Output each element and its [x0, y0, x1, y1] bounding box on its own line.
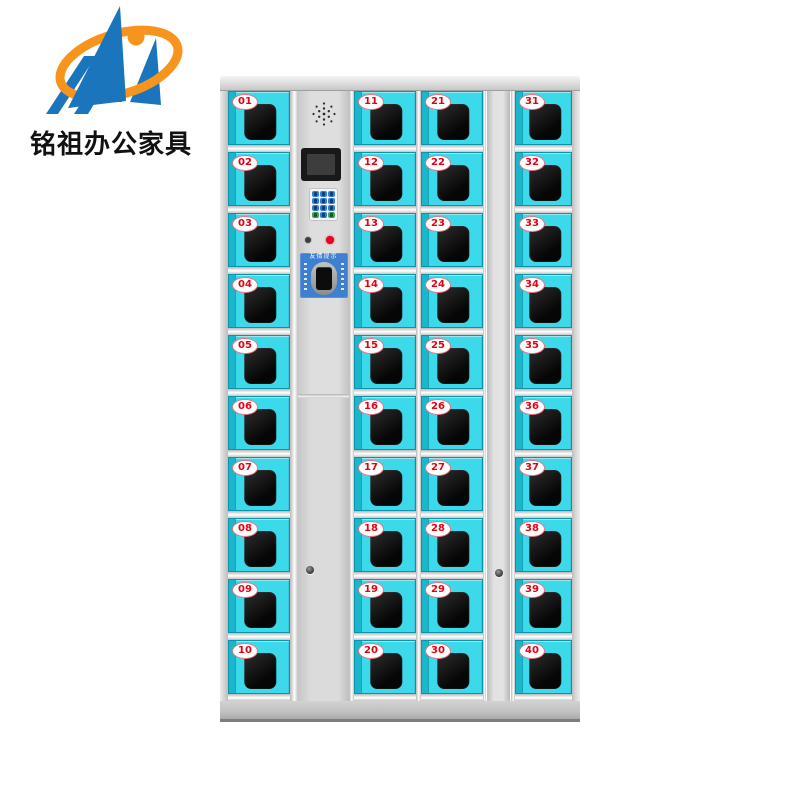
locker-number-badge: 37	[519, 460, 545, 476]
locker-column-2: 11 12 13 14	[354, 91, 416, 701]
locker-door-18: 18	[354, 518, 416, 572]
keypad-button	[320, 191, 327, 197]
locker-door-20: 20	[354, 640, 416, 694]
keypad-button	[312, 212, 319, 218]
shelf-rail	[421, 572, 483, 579]
locker-door-10: 10	[228, 640, 290, 694]
locker-slot: 36	[515, 396, 572, 457]
shelf-rail	[515, 694, 572, 701]
locker-door-27: 27	[421, 457, 483, 511]
locker-slot: 18	[354, 518, 416, 579]
locker-slot: 26	[421, 396, 483, 457]
shelf-rail	[228, 328, 290, 335]
cabinet-left-frame	[220, 91, 228, 701]
locker-number-badge: 31	[519, 94, 545, 110]
locker-door-31: 31	[515, 91, 572, 145]
keyhole-icon	[495, 569, 503, 577]
locker-slot: 39	[515, 579, 572, 640]
locker-door-25: 25	[421, 335, 483, 389]
locker-slot: 05	[228, 335, 290, 396]
shelf-rail	[354, 633, 416, 640]
locker-slot: 11	[354, 91, 416, 152]
locker-number-badge: 20	[358, 643, 384, 659]
locker-cabinet: 01 02 03 04	[220, 76, 580, 722]
reader-side-text	[304, 263, 307, 293]
keypad-button	[328, 205, 335, 211]
speaker-grille-icon	[309, 99, 339, 129]
locker-number-badge: 14	[358, 277, 384, 293]
shelf-rail	[354, 206, 416, 213]
shelf-rail	[421, 206, 483, 213]
locker-number-badge: 38	[519, 521, 545, 537]
reader-panel-title: 友情提示	[300, 253, 348, 261]
locker-door-07: 07	[228, 457, 290, 511]
locker-number-badge: 33	[519, 216, 545, 232]
shelf-rail	[228, 206, 290, 213]
locker-door-38: 38	[515, 518, 572, 572]
locker-number-badge: 13	[358, 216, 384, 232]
locker-door-22: 22	[421, 152, 483, 206]
shelf-rail	[421, 450, 483, 457]
locker-door-32: 32	[515, 152, 572, 206]
locker-door-29: 29	[421, 579, 483, 633]
shelf-rail	[515, 206, 572, 213]
locker-number-badge: 26	[425, 399, 451, 415]
locker-number-badge: 34	[519, 277, 545, 293]
locker-number-badge: 05	[232, 338, 258, 354]
locker-door-26: 26	[421, 396, 483, 450]
shelf-rail	[421, 694, 483, 701]
locker-slot: 34	[515, 274, 572, 335]
locker-number-badge: 02	[232, 155, 258, 171]
cabinet-base	[220, 701, 580, 722]
locker-slot: 24	[421, 274, 483, 335]
locker-number-badge: 21	[425, 94, 451, 110]
shelf-rail	[421, 511, 483, 518]
locker-door-39: 39	[515, 579, 572, 633]
locker-number-badge: 15	[358, 338, 384, 354]
locker-slot: 14	[354, 274, 416, 335]
shelf-rail	[354, 694, 416, 701]
locker-number-badge: 06	[232, 399, 258, 415]
shelf-rail	[354, 145, 416, 152]
locker-door-05: 05	[228, 335, 290, 389]
locker-door-23: 23	[421, 213, 483, 267]
locker-door-04: 04	[228, 274, 290, 328]
locker-door-40: 40	[515, 640, 572, 694]
shelf-rail	[228, 694, 290, 701]
shelf-rail	[515, 328, 572, 335]
locker-door-34: 34	[515, 274, 572, 328]
locker-number-badge: 25	[425, 338, 451, 354]
locker-slot: 23	[421, 213, 483, 274]
locker-number-badge: 36	[519, 399, 545, 415]
shelf-rail	[421, 328, 483, 335]
shelf-rail	[421, 389, 483, 396]
locker-slot: 35	[515, 335, 572, 396]
locker-slot: 06	[228, 396, 290, 457]
locker-number-badge: 28	[425, 521, 451, 537]
locker-slot: 12	[354, 152, 416, 213]
shelf-rail	[421, 633, 483, 640]
locker-door-11: 11	[354, 91, 416, 145]
shelf-rail	[421, 267, 483, 274]
locker-slot: 27	[421, 457, 483, 518]
locker-door-33: 33	[515, 213, 572, 267]
logo-mark-icon	[44, 4, 194, 122]
locker-number-badge: 09	[232, 582, 258, 598]
locker-slot: 21	[421, 91, 483, 152]
locker-door-14: 14	[354, 274, 416, 328]
scanner-window	[316, 267, 332, 290]
locker-number-badge: 19	[358, 582, 384, 598]
shelf-rail	[354, 572, 416, 579]
shelf-rail	[228, 389, 290, 396]
locker-door-17: 17	[354, 457, 416, 511]
display-screen-glass	[307, 154, 335, 175]
reader-side-text	[341, 263, 344, 293]
locker-door-37: 37	[515, 457, 572, 511]
locker-door-21: 21	[421, 91, 483, 145]
locker-number-badge: 10	[232, 643, 258, 659]
shelf-rail	[354, 328, 416, 335]
locker-slot: 08	[228, 518, 290, 579]
shelf-rail	[228, 633, 290, 640]
locker-number-badge: 39	[519, 582, 545, 598]
locker-number-badge: 23	[425, 216, 451, 232]
shelf-rail	[354, 389, 416, 396]
indicator-dark-icon	[305, 237, 311, 243]
locker-number-badge: 29	[425, 582, 451, 598]
locker-slot: 02	[228, 152, 290, 213]
status-indicators	[305, 236, 349, 244]
divider-panel	[486, 91, 511, 701]
keypad-button	[312, 198, 319, 204]
locker-door-12: 12	[354, 152, 416, 206]
keypad-button	[328, 191, 335, 197]
locker-column-1: 01 02 03 04	[228, 91, 290, 701]
locker-slot: 17	[354, 457, 416, 518]
locker-door-13: 13	[354, 213, 416, 267]
frame-mullion	[290, 91, 298, 701]
keyhole-icon	[306, 566, 314, 574]
shelf-rail	[228, 511, 290, 518]
shelf-rail	[228, 450, 290, 457]
locker-number-badge: 04	[232, 277, 258, 293]
scanner-bezel	[311, 262, 337, 295]
locker-door-35: 35	[515, 335, 572, 389]
locker-number-badge: 17	[358, 460, 384, 476]
locker-slot: 15	[354, 335, 416, 396]
locker-number-badge: 01	[232, 94, 258, 110]
shelf-rail	[515, 572, 572, 579]
locker-number-badge: 08	[232, 521, 258, 537]
locker-door-03: 03	[228, 213, 290, 267]
card-reader-panel: 友情提示	[300, 253, 348, 298]
locker-number-badge: 24	[425, 277, 451, 293]
keypad-button	[312, 191, 319, 197]
locker-number-badge: 32	[519, 155, 545, 171]
locker-door-09: 09	[228, 579, 290, 633]
locker-door-15: 15	[354, 335, 416, 389]
cabinet-top-rail	[220, 76, 580, 91]
locker-number-badge: 27	[425, 460, 451, 476]
keypad-button	[320, 212, 327, 218]
locker-door-28: 28	[421, 518, 483, 572]
service-door	[298, 398, 349, 701]
locker-door-02: 02	[228, 152, 290, 206]
keypad-button	[328, 198, 335, 204]
locker-slot: 37	[515, 457, 572, 518]
locker-slot: 30	[421, 640, 483, 701]
locker-door-36: 36	[515, 396, 572, 450]
locker-slot: 25	[421, 335, 483, 396]
locker-door-01: 01	[228, 91, 290, 145]
locker-number-badge: 16	[358, 399, 384, 415]
locker-column-3: 21 22 23 24	[421, 91, 483, 701]
shelf-rail	[515, 450, 572, 457]
locker-slot: 29	[421, 579, 483, 640]
locker-column-4: 31 32 33 34	[515, 91, 572, 701]
locker-door-30: 30	[421, 640, 483, 694]
locker-slot: 10	[228, 640, 290, 701]
locker-slot: 01	[228, 91, 290, 152]
locker-door-06: 06	[228, 396, 290, 450]
locker-slot: 03	[228, 213, 290, 274]
keypad-button	[320, 198, 327, 204]
keypad-button	[312, 205, 319, 211]
locker-slot: 16	[354, 396, 416, 457]
locker-slot: 33	[515, 213, 572, 274]
control-column: 友情提示	[298, 91, 349, 701]
locker-slot: 04	[228, 274, 290, 335]
locker-number-badge: 22	[425, 155, 451, 171]
locker-number-badge: 03	[232, 216, 258, 232]
display-screen	[301, 148, 341, 181]
shelf-rail	[515, 389, 572, 396]
shelf-rail	[515, 145, 572, 152]
shelf-rail	[421, 145, 483, 152]
shelf-rail	[354, 267, 416, 274]
locker-slot: 07	[228, 457, 290, 518]
locker-slot: 32	[515, 152, 572, 213]
shelf-rail	[515, 633, 572, 640]
locker-number-badge: 30	[425, 643, 451, 659]
cabinet-body: 01 02 03 04	[220, 91, 580, 701]
locker-slot: 19	[354, 579, 416, 640]
keypad	[310, 189, 337, 220]
locker-number-badge: 07	[232, 460, 258, 476]
locker-number-badge: 40	[519, 643, 545, 659]
shelf-rail	[228, 145, 290, 152]
locker-slot: 31	[515, 91, 572, 152]
cabinet-right-frame	[572, 91, 580, 701]
shelf-rail	[515, 511, 572, 518]
indicator-red-icon	[326, 236, 334, 244]
shelf-rail	[354, 511, 416, 518]
shelf-rail	[228, 267, 290, 274]
keypad-button	[320, 205, 327, 211]
locker-door-08: 08	[228, 518, 290, 572]
locker-number-badge: 12	[358, 155, 384, 171]
locker-door-16: 16	[354, 396, 416, 450]
control-panel: 友情提示	[298, 91, 349, 394]
keypad-button	[328, 212, 335, 218]
locker-slot: 13	[354, 213, 416, 274]
locker-door-24: 24	[421, 274, 483, 328]
locker-slot: 28	[421, 518, 483, 579]
shelf-rail	[515, 267, 572, 274]
locker-slot: 22	[421, 152, 483, 213]
locker-number-badge: 18	[358, 521, 384, 537]
locker-slot: 40	[515, 640, 572, 701]
locker-slot: 38	[515, 518, 572, 579]
locker-slot: 09	[228, 579, 290, 640]
shelf-rail	[354, 450, 416, 457]
locker-number-badge: 35	[519, 338, 545, 354]
shelf-rail	[228, 572, 290, 579]
locker-door-19: 19	[354, 579, 416, 633]
locker-slot: 20	[354, 640, 416, 701]
locker-number-badge: 11	[358, 94, 384, 110]
